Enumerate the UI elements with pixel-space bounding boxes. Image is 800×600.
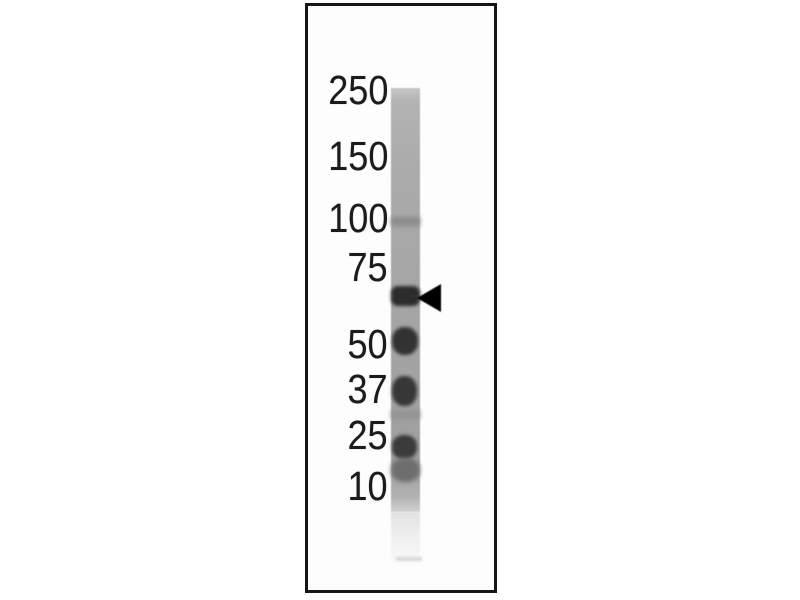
gel-lane <box>391 88 420 512</box>
marker-label-25: 25 <box>348 415 388 456</box>
left-arrowhead-icon <box>417 284 441 312</box>
marker-label-100: 100 <box>328 198 388 239</box>
band-20kda <box>391 458 420 482</box>
lane-bottom-mark <box>396 557 422 561</box>
band-25kda <box>392 435 417 459</box>
marker-label-10: 10 <box>348 466 388 507</box>
band-50kda <box>392 327 418 355</box>
marker-label-75: 75 <box>348 247 388 288</box>
marker-label-250: 250 <box>328 70 388 111</box>
band-30kda-faint <box>391 410 420 419</box>
marker-label-50: 50 <box>348 324 388 365</box>
blot-frame: 250 150 100 75 50 37 25 10 <box>305 3 497 593</box>
band-target-arrowed <box>391 286 420 306</box>
lane-ghost-region <box>391 512 420 570</box>
band-37kda <box>392 376 417 406</box>
marker-label-150: 150 <box>328 136 388 177</box>
marker-label-37: 37 <box>348 369 388 410</box>
band-100kda-faint <box>391 217 420 226</box>
